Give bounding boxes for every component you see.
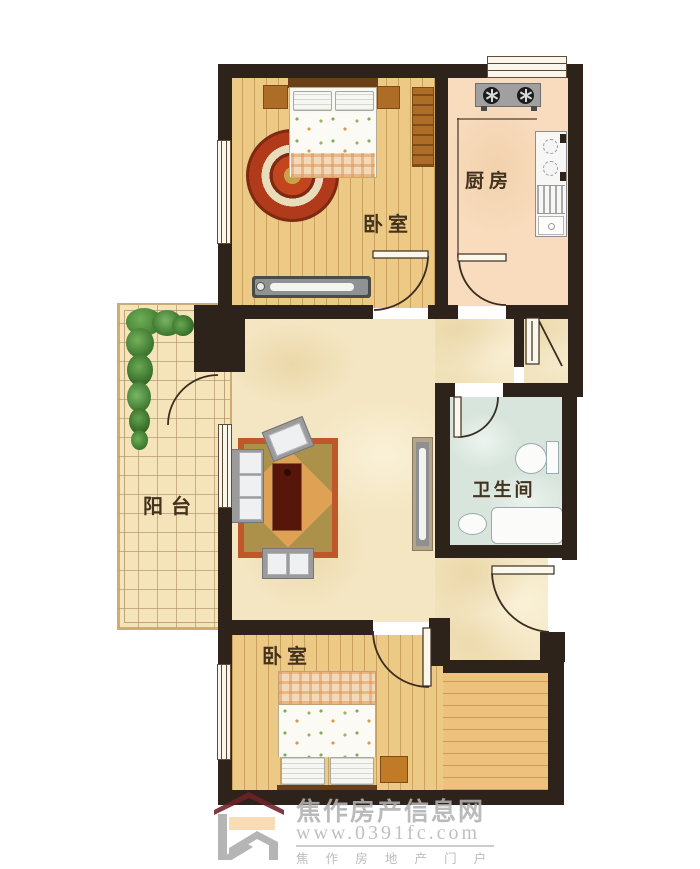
wall-right-upper: [568, 64, 583, 397]
bed-bottom: [277, 671, 377, 795]
wall-vestibule-left: [514, 319, 524, 367]
counter-dark-block: [560, 172, 566, 181]
coffee-table: [272, 463, 302, 531]
wall-bathroom-bottom: [435, 545, 577, 558]
radiator-bedroom-top: [252, 276, 371, 298]
chair-cushion: [267, 553, 287, 575]
chair-bottom: [262, 548, 314, 579]
site-logo-icon: [212, 788, 292, 860]
plant: [131, 430, 148, 450]
wall-bathroom-left: [435, 390, 450, 558]
wall-living-top-b: [428, 305, 458, 319]
label-bedroom-bottom: 卧室: [245, 640, 329, 669]
stove-burner: [517, 87, 534, 104]
wall-balcony-corner-block: [194, 305, 245, 372]
sink-drain: [548, 223, 555, 230]
watermark-url: www.0391fc.com: [296, 822, 480, 845]
radiator-slot: [419, 448, 426, 540]
label-bedroom-top: 卧室: [346, 208, 430, 237]
toilet-tank: [546, 441, 559, 474]
passage-floor: [435, 558, 548, 660]
watermark-divider: [296, 845, 494, 847]
kitchen-counter: [535, 131, 567, 237]
chair-cushion: [289, 553, 309, 575]
nightstand-left: [263, 85, 288, 109]
plate: [543, 139, 558, 154]
wall-bedroom2-door-jamb: [429, 618, 450, 666]
sink: [538, 216, 564, 235]
toilet-bowl: [515, 443, 547, 474]
plant: [172, 315, 194, 336]
radiator-slot: [270, 283, 354, 291]
counter-dark-block: [560, 134, 566, 143]
stove-foot: [531, 106, 537, 111]
pillow: [330, 757, 374, 785]
pillow: [293, 91, 332, 111]
sofa-cushion: [239, 452, 262, 474]
floor-plan-page: 卧室 厨房 阳台 卫生间 卧室 焦作房产信息网 www.0391fc.com 焦…: [0, 0, 700, 869]
label-balcony: 阳台: [128, 490, 214, 519]
bathtub: [491, 507, 563, 544]
bed-foot-blanket: [278, 671, 376, 705]
radiator-living: [412, 437, 433, 551]
bedroom-bottom-floor-right: [443, 673, 548, 790]
bathroom-sink: [458, 513, 487, 535]
pillow: [281, 757, 325, 785]
bed-sheet: [278, 705, 376, 757]
sofa: [231, 449, 264, 523]
label-bathroom: 卫生间: [444, 476, 564, 502]
wall-bedroom2-top: [218, 620, 373, 635]
bed-body: [289, 87, 377, 178]
wall-bathroom-right: [562, 383, 577, 560]
hall-floor: [435, 319, 514, 383]
wall-entry-hinge-block: [540, 632, 565, 662]
pillow: [335, 91, 374, 111]
sofa-cushion: [239, 498, 262, 520]
wardrobe: [412, 87, 434, 167]
drying-rack: [537, 185, 565, 214]
stove-burner: [483, 87, 500, 104]
wall-living-top-c: [506, 305, 570, 319]
watermark-tagline: 焦 作 房 地 产 门 户: [296, 848, 487, 867]
stove: [475, 83, 541, 107]
nightstand-bottom: [380, 756, 408, 783]
window-bedroom-bottom: [217, 664, 231, 760]
plate: [543, 161, 558, 176]
nightstand-right: [377, 86, 400, 109]
window-bedroom-top: [217, 140, 231, 244]
watermark: 焦作房产信息网 www.0391fc.com 焦 作 房 地 产 门 户: [212, 786, 512, 868]
table-knob: [284, 469, 291, 476]
vestibule-floor: [524, 319, 568, 383]
stove-foot: [481, 106, 487, 111]
label-kitchen: 厨房: [447, 166, 531, 193]
bed-sheet: [291, 113, 375, 153]
bed-top: [288, 77, 378, 178]
window-kitchen: [487, 56, 567, 78]
sofa-cushion: [239, 475, 262, 497]
window-balcony-living: [218, 424, 232, 508]
radiator-valve: [256, 282, 265, 291]
counter-edge-line-top: [457, 118, 537, 120]
wall-bedroom2-right: [548, 660, 564, 805]
wall-left-mid: [218, 508, 232, 624]
wall-bedroom2-upper-right: [443, 660, 550, 673]
bed-foot-blanket: [291, 153, 375, 177]
